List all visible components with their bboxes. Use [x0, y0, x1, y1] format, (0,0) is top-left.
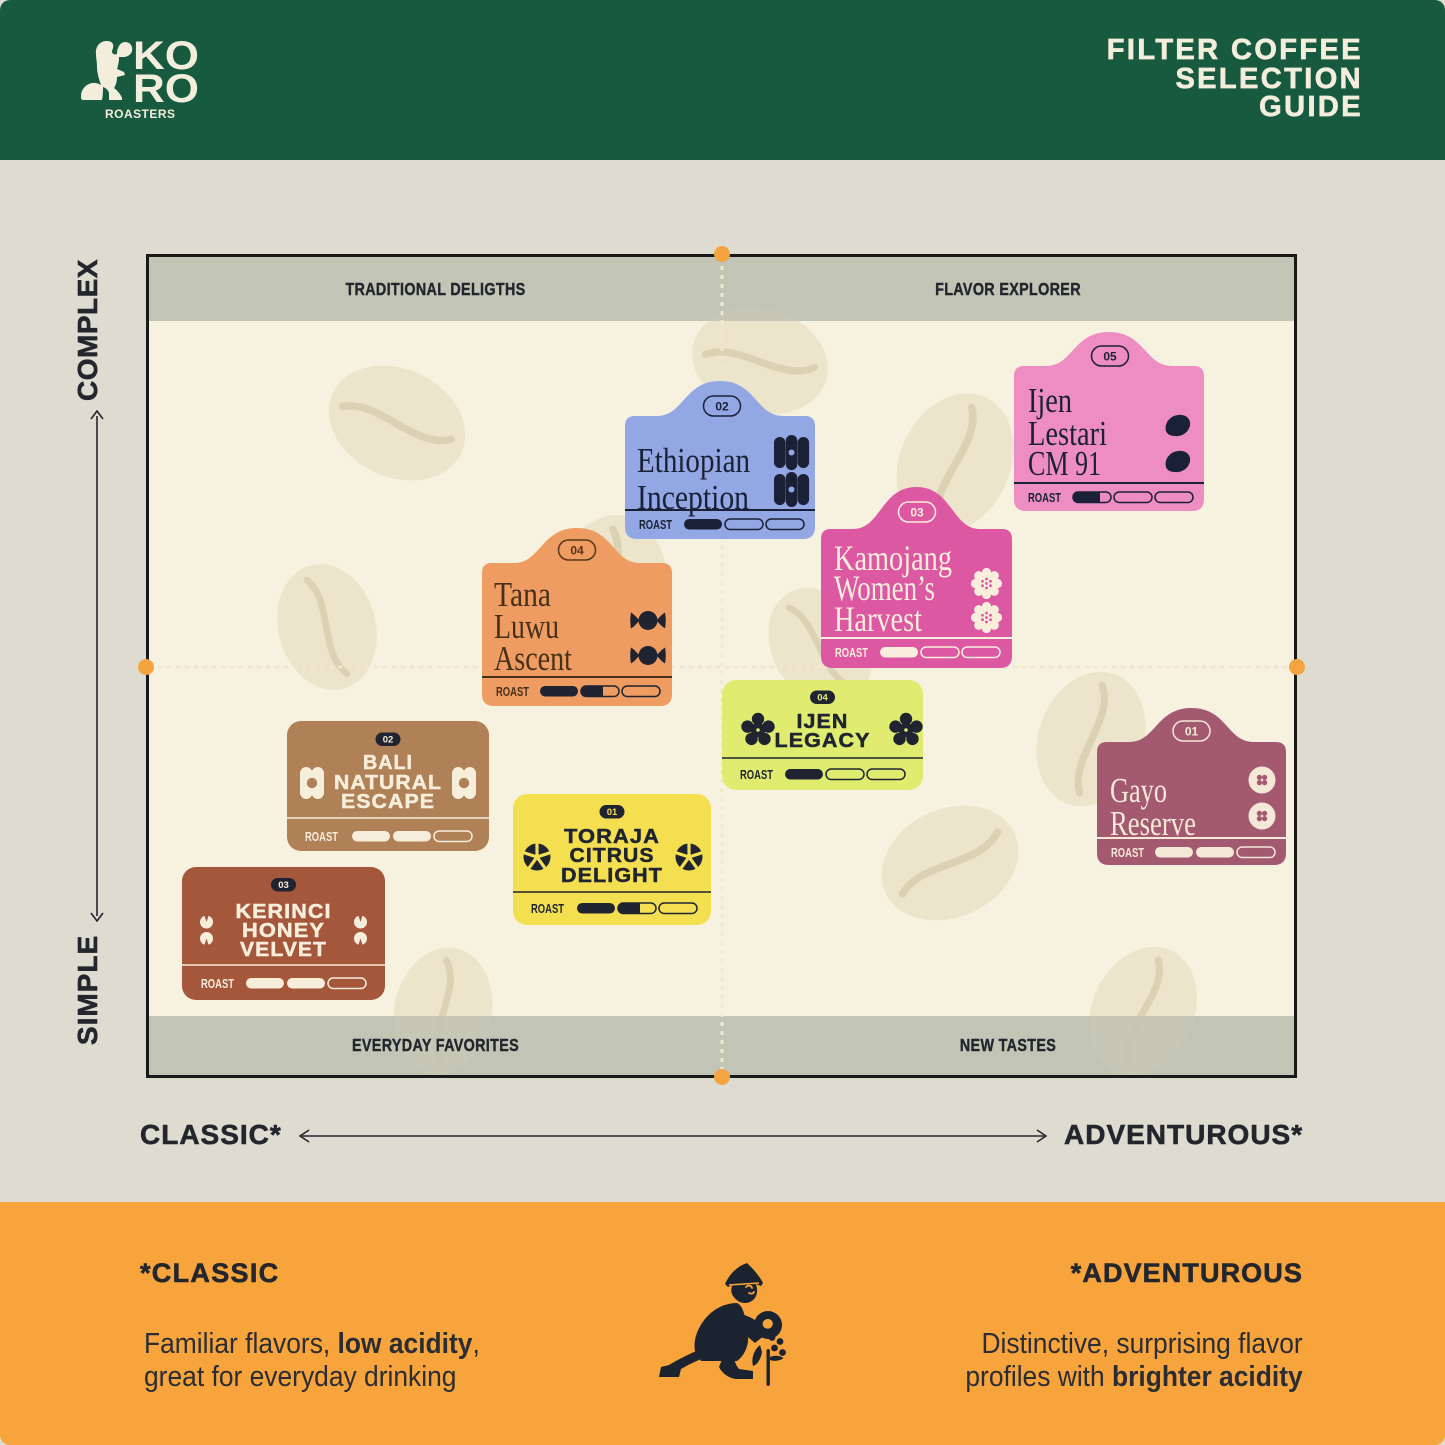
svg-text:03: 03 — [278, 880, 289, 891]
svg-text:RO: RO — [133, 67, 199, 111]
svg-text:ROAST: ROAST — [1028, 490, 1061, 505]
svg-text:05: 05 — [1103, 350, 1117, 364]
svg-text:LEGACY: LEGACY — [775, 730, 871, 752]
svg-text:ROAST: ROAST — [835, 645, 868, 660]
svg-text:ROAST: ROAST — [201, 976, 234, 991]
svg-text:04: 04 — [570, 544, 584, 558]
svg-text:VELVET: VELVET — [240, 939, 327, 961]
svg-text:Ascent: Ascent — [494, 639, 572, 678]
svg-text:ROAST: ROAST — [1111, 845, 1144, 860]
svg-text:01: 01 — [607, 807, 618, 818]
svg-text:CM 91: CM 91 — [1028, 444, 1101, 483]
svg-text:ESCAPE: ESCAPE — [341, 791, 435, 813]
svg-text:COMPLEX: COMPLEX — [72, 259, 103, 401]
svg-text:BALI: BALI — [363, 752, 413, 774]
svg-text:Inception: Inception — [637, 478, 749, 517]
svg-text:Ethiopian: Ethiopian — [637, 441, 750, 480]
svg-text:CITRUS: CITRUS — [570, 845, 655, 867]
svg-text:ROAST: ROAST — [496, 684, 529, 699]
svg-text:03: 03 — [910, 506, 924, 520]
svg-text:ROASTERS: ROASTERS — [105, 107, 175, 121]
svg-text:Harvest: Harvest — [834, 599, 922, 639]
svg-text:01: 01 — [1185, 725, 1199, 739]
svg-text:ROAST: ROAST — [531, 901, 564, 916]
svg-text:02: 02 — [383, 735, 394, 746]
svg-text:ROAST: ROAST — [305, 829, 338, 844]
svg-text:SIMPLE: SIMPLE — [72, 935, 103, 1045]
svg-text:DELIGHT: DELIGHT — [561, 865, 663, 887]
svg-text:02: 02 — [715, 400, 729, 414]
svg-text:04: 04 — [817, 693, 828, 704]
svg-text:ROAST: ROAST — [740, 767, 773, 782]
